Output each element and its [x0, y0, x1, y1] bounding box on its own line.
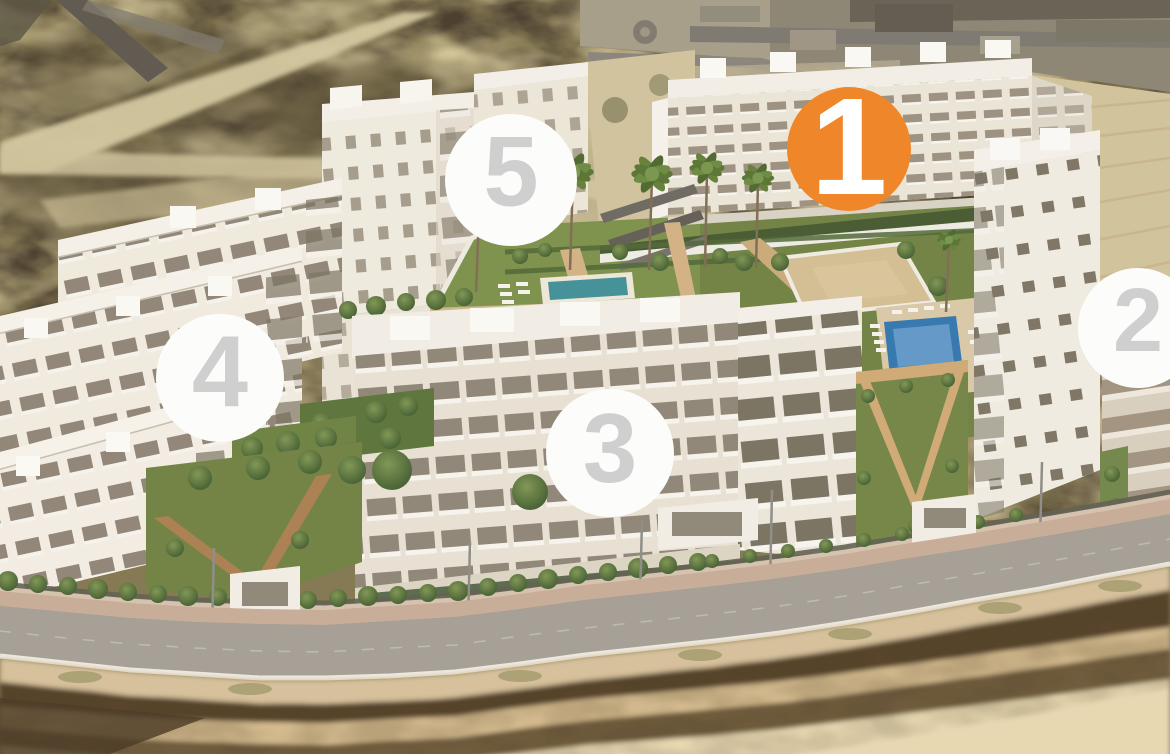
svg-text:4: 4	[192, 316, 248, 428]
svg-text:5: 5	[483, 116, 538, 227]
svg-text:3: 3	[583, 393, 638, 503]
svg-text:2: 2	[1113, 271, 1163, 371]
svg-text:1: 1	[811, 70, 888, 224]
